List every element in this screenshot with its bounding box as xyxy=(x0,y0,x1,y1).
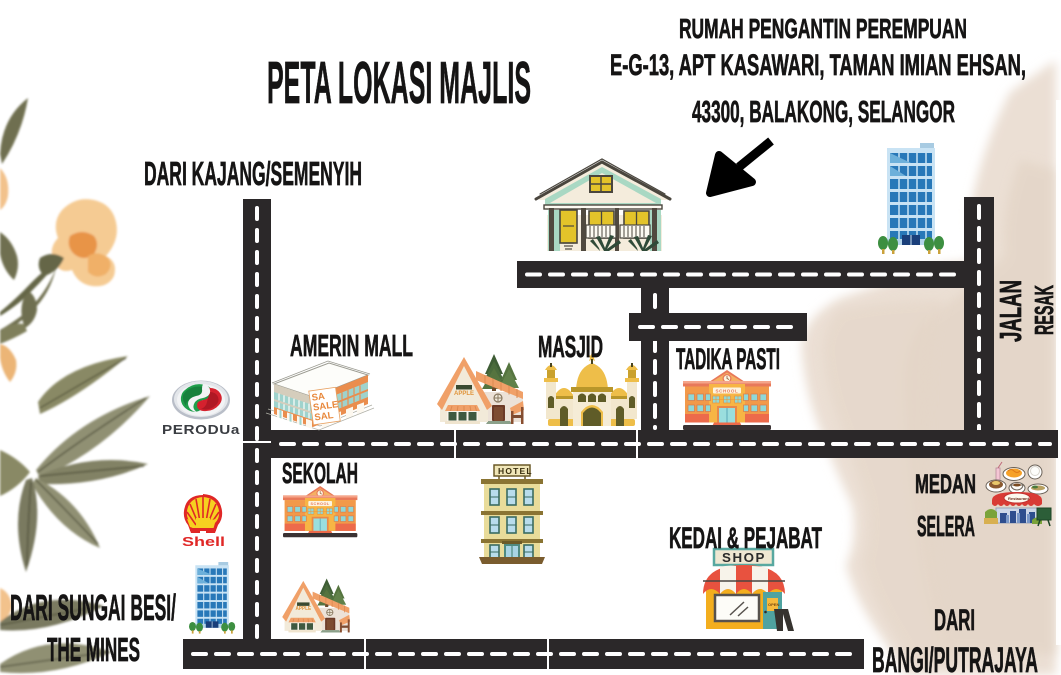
svg-text:SEKOLAH: SEKOLAH xyxy=(282,458,358,490)
svg-text:AMERIN MALL: AMERIN MALL xyxy=(290,328,413,363)
svg-text:PERODUa: PERODUa xyxy=(162,422,240,437)
svg-text:RUMAH PENGANTIN PEREMPUAN: RUMAH PENGANTIN PEREMPUAN xyxy=(679,13,967,44)
svg-text:Restaurant: Restaurant xyxy=(1008,496,1030,501)
svg-text:THE MINES: THE MINES xyxy=(47,631,140,668)
svg-text:DARI KAJANG/SEMENYIH: DARI KAJANG/SEMENYIH xyxy=(144,155,362,192)
svg-text:SELERA: SELERA xyxy=(917,511,975,543)
svg-text:HOTEL: HOTEL xyxy=(498,466,533,476)
svg-text:MEDAN: MEDAN xyxy=(915,469,976,499)
svg-text:Shell: Shell xyxy=(182,535,225,549)
svg-text:BANGI/PUTRAJAYA: BANGI/PUTRAJAYA xyxy=(872,641,1038,675)
svg-text:DARI SUNGAI BESI/: DARI SUNGAI BESI/ xyxy=(10,587,176,628)
svg-text:MASJID: MASJID xyxy=(538,329,603,364)
svg-text:RESAK: RESAK xyxy=(1029,285,1059,335)
svg-text:JALAN: JALAN xyxy=(993,280,1028,342)
svg-text:DARI: DARI xyxy=(934,604,975,637)
svg-text:KEDAI & PEJABAT: KEDAI & PEJABAT xyxy=(669,522,822,555)
svg-text:OPEN: OPEN xyxy=(768,602,779,607)
svg-text:PETA LOKASI MAJLIS: PETA LOKASI MAJLIS xyxy=(267,50,531,116)
svg-text:43300, BALAKONG, SELANGOR: 43300, BALAKONG, SELANGOR xyxy=(692,94,955,129)
svg-text:E-G-13, APT KASAWARI, TAMAN IM: E-G-13, APT KASAWARI, TAMAN IMIAN EHSAN, xyxy=(610,49,1026,82)
svg-text:TADIKA PASTI: TADIKA PASTI xyxy=(676,343,780,376)
